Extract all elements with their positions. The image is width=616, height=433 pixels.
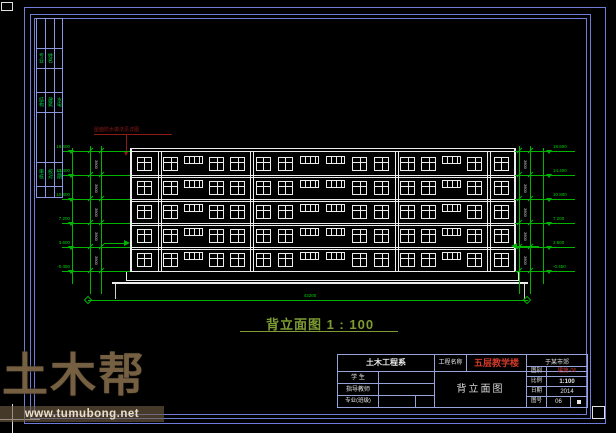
window-w4	[374, 157, 389, 171]
cad-canvas: 屋面防水做法见详图 背立面图 1 : 100 土木工程系 工程名称 五层教学楼 …	[0, 0, 616, 433]
window-w4	[163, 229, 178, 243]
window-w4	[374, 205, 389, 219]
floor-bay-row	[160, 178, 248, 198]
window-w4	[467, 205, 482, 219]
elevation-flag-icon	[546, 246, 552, 250]
dim-connector-right	[515, 223, 575, 224]
dim-flagline-right	[543, 148, 544, 284]
ground-line	[112, 282, 528, 284]
wall-marker-right	[517, 246, 539, 247]
floor-bay-row	[489, 202, 513, 222]
elevation-value: 7.200	[42, 217, 70, 222]
window-w4	[400, 205, 415, 219]
drawing-title-scale: 1 : 100	[327, 317, 374, 332]
floor-bay-row	[160, 154, 248, 174]
window-w3	[300, 204, 319, 212]
elevation-flag-icon	[68, 198, 74, 202]
window-w4	[400, 157, 415, 171]
window-w4	[494, 181, 509, 195]
story-height-label: 3600	[521, 157, 529, 171]
elevation-flag-icon	[546, 174, 552, 178]
window-w3	[300, 252, 319, 260]
drawing-title-underline	[240, 331, 398, 332]
window-w4	[163, 181, 178, 195]
elevation-flag-icon	[546, 222, 552, 226]
window-w4	[230, 205, 245, 219]
story-height-label: 3600	[521, 229, 529, 243]
window-w4	[230, 157, 245, 171]
floor-slab-line	[130, 199, 515, 200]
window-w4	[494, 229, 509, 243]
signature-grid-line	[36, 48, 63, 49]
titleblock-class-label: 专业(班级)	[337, 395, 379, 408]
window-w3	[300, 156, 319, 164]
elevation-flag-icon	[68, 174, 74, 178]
floor-slab-line	[130, 151, 515, 152]
window-w4	[278, 205, 293, 219]
floor-bay-row	[397, 226, 485, 246]
floor-slab-line	[130, 175, 515, 176]
floor-bay-row	[160, 226, 248, 246]
dim-connector-right	[515, 199, 575, 200]
window-w4	[352, 157, 367, 171]
window-w4	[256, 157, 271, 171]
dim-connector-right	[515, 175, 575, 176]
window-w4	[400, 181, 415, 195]
floor-bay-row	[132, 226, 156, 246]
window-w4	[421, 157, 436, 171]
signature-grid-line	[36, 92, 63, 93]
window-w4	[256, 205, 271, 219]
window-w4	[256, 229, 271, 243]
floor-bay-row	[132, 250, 156, 270]
window-w3	[300, 180, 319, 188]
roof-note-underline	[94, 134, 172, 135]
elevation-flag-icon	[68, 222, 74, 226]
window-w4	[352, 229, 367, 243]
story-height-label: 3600	[92, 205, 100, 219]
wall-marker-left	[104, 243, 126, 244]
window-w4	[421, 181, 436, 195]
window-w3	[184, 228, 203, 236]
window-w4	[163, 253, 178, 267]
floor-bay-row	[132, 202, 156, 222]
elevation-value: -0.450	[553, 265, 583, 270]
window-w4	[421, 205, 436, 219]
bay-divider	[158, 151, 159, 271]
bay-divider	[487, 151, 488, 271]
window-w3	[326, 252, 345, 260]
window-w4	[374, 253, 389, 267]
elevation-value: 14.400	[553, 169, 583, 174]
corner-mark-topleft	[1, 2, 13, 11]
story-height-label: 3600	[92, 229, 100, 243]
signature-grid-line	[36, 162, 63, 163]
story-height-label: 3600	[521, 181, 529, 195]
roof-parapet-line	[130, 148, 515, 149]
elevation-value: 3.600	[553, 241, 583, 246]
elevation-value: 18.600	[553, 145, 583, 150]
titleblock-sheet-box	[570, 396, 588, 408]
window-w4	[400, 229, 415, 243]
titleblock-project-name: 五层教学楼	[466, 354, 527, 372]
signature-cell-text: 日期	[55, 164, 62, 184]
floor-bay-row	[252, 154, 393, 174]
signature-cell-text: 审核	[37, 164, 44, 184]
dim-flagline-left	[72, 148, 73, 284]
bay-divider	[250, 151, 251, 271]
window-w4	[467, 229, 482, 243]
titleblock-number-label: 图号	[526, 396, 547, 408]
window-w3	[442, 228, 461, 236]
window-w3	[442, 156, 461, 164]
window-w4	[163, 205, 178, 219]
window-w4	[467, 181, 482, 195]
plinth-band	[126, 271, 519, 281]
sheet-mark-icon	[577, 400, 581, 404]
floor-bay-row	[397, 178, 485, 198]
window-w3	[326, 228, 345, 236]
signature-cell-text: 专业	[37, 50, 44, 66]
story-height-label: 3600	[92, 253, 100, 267]
window-w4	[374, 229, 389, 243]
window-w3	[184, 180, 203, 188]
signature-cell-text: 姓名	[46, 50, 53, 66]
facade-edge-right	[514, 148, 516, 271]
elevation-flag-icon	[546, 270, 552, 274]
floor-slab-line	[130, 223, 515, 224]
dim-connector-right	[515, 151, 575, 152]
window-w3	[442, 180, 461, 188]
elevation-flag-icon	[546, 198, 552, 202]
elevation-flag-icon	[68, 246, 74, 250]
story-height-label: 3600	[521, 253, 529, 267]
signature-grid-line	[36, 112, 63, 113]
elevation-flag-icon	[546, 150, 552, 154]
watermark-brand: 土木帮	[2, 352, 146, 398]
floor-bay-row	[160, 250, 248, 270]
watermark-url: www.tumubong.net	[25, 408, 139, 420]
roof-note-text: 屋面防水做法见详图	[94, 126, 176, 133]
window-w4	[421, 229, 436, 243]
watermark-url-bar: www.tumubong.net	[0, 406, 164, 422]
wall-marker-arrow-icon	[511, 243, 517, 249]
floor-slab-line	[130, 247, 515, 248]
bay-divider	[395, 151, 396, 271]
floor-bay-row	[160, 202, 248, 222]
window-w3	[184, 156, 203, 164]
window-w4	[137, 181, 152, 195]
overall-dim-line	[88, 300, 528, 301]
elevation-value: 10.800	[553, 193, 583, 198]
window-w4	[163, 157, 178, 171]
window-w4	[230, 181, 245, 195]
wall-marker-arrow-icon	[124, 240, 130, 246]
titleblock-drawing-name: 背立面图	[434, 371, 527, 408]
elevation-value: 7.200	[553, 217, 583, 222]
titleblock-class-value	[378, 395, 416, 408]
story-height-label: 3600	[92, 181, 100, 195]
window-w4	[494, 157, 509, 171]
floor-bay-row	[489, 250, 513, 270]
roof-note-arrow-icon	[124, 152, 128, 156]
window-w4	[256, 253, 271, 267]
titleblock-department: 土木工程系	[337, 354, 435, 372]
window-w3	[442, 204, 461, 212]
titleblock-project-label: 工程名称	[434, 354, 467, 372]
window-w4	[209, 157, 224, 171]
window-w3	[326, 156, 345, 164]
floor-bay-row	[132, 178, 156, 198]
window-w4	[352, 181, 367, 195]
floor-bay-row	[252, 250, 393, 270]
window-w4	[352, 253, 367, 267]
window-w4	[421, 253, 436, 267]
floor-bay-row	[252, 178, 393, 198]
floor-bay-row	[489, 154, 513, 174]
overall-width-label: 43200	[290, 294, 330, 299]
story-height-label: 3600	[521, 205, 529, 219]
floor-bay-row	[397, 202, 485, 222]
window-w4	[467, 253, 482, 267]
dim-ext-line	[115, 284, 116, 299]
story-height-label: 3600	[92, 157, 100, 171]
signature-cell-text: 结构	[37, 94, 44, 110]
floor-bay-row	[132, 154, 156, 174]
elevation-flag-icon	[68, 150, 74, 154]
window-w4	[230, 229, 245, 243]
window-w4	[278, 253, 293, 267]
window-w4	[137, 205, 152, 219]
elevation-value: -0.450	[42, 265, 70, 270]
floor-bay-row	[397, 250, 485, 270]
floor-bay-row	[489, 178, 513, 198]
signature-grid-line	[36, 186, 63, 187]
titleblock-number-value: 06	[546, 396, 571, 408]
floor-bay-row	[252, 202, 393, 222]
window-w3	[184, 204, 203, 212]
window-w4	[209, 205, 224, 219]
window-w4	[494, 205, 509, 219]
floor-bay-row	[397, 154, 485, 174]
signature-cell-text: 水电	[55, 94, 62, 110]
window-w4	[374, 181, 389, 195]
floor-bay-row	[252, 226, 393, 246]
window-w4	[137, 229, 152, 243]
window-w4	[209, 181, 224, 195]
window-w4	[209, 253, 224, 267]
window-w4	[209, 229, 224, 243]
signature-grid-line	[36, 68, 63, 69]
signature-cell-text: 校对	[46, 164, 53, 184]
floor-bay-row	[489, 226, 513, 246]
window-w4	[494, 253, 509, 267]
window-w4	[230, 253, 245, 267]
window-w4	[278, 181, 293, 195]
window-w4	[278, 157, 293, 171]
window-w4	[137, 157, 152, 171]
window-w3	[300, 228, 319, 236]
window-w3	[442, 252, 461, 260]
drawing-title-name: 背立面图	[266, 317, 322, 332]
window-w4	[278, 229, 293, 243]
window-w4	[256, 181, 271, 195]
signature-cell-text: 建筑	[46, 94, 53, 110]
dim-connector-right	[515, 247, 575, 248]
elevation-flag-icon	[68, 270, 74, 274]
titleblock-class-value2	[415, 395, 435, 408]
dim-connector-right	[515, 271, 575, 272]
window-w4	[137, 253, 152, 267]
window-w4	[467, 157, 482, 171]
window-w3	[184, 252, 203, 260]
window-w3	[326, 204, 345, 212]
elevation-value: 3.600	[42, 241, 70, 246]
window-w4	[400, 253, 415, 267]
window-w4	[352, 205, 367, 219]
window-w3	[326, 180, 345, 188]
